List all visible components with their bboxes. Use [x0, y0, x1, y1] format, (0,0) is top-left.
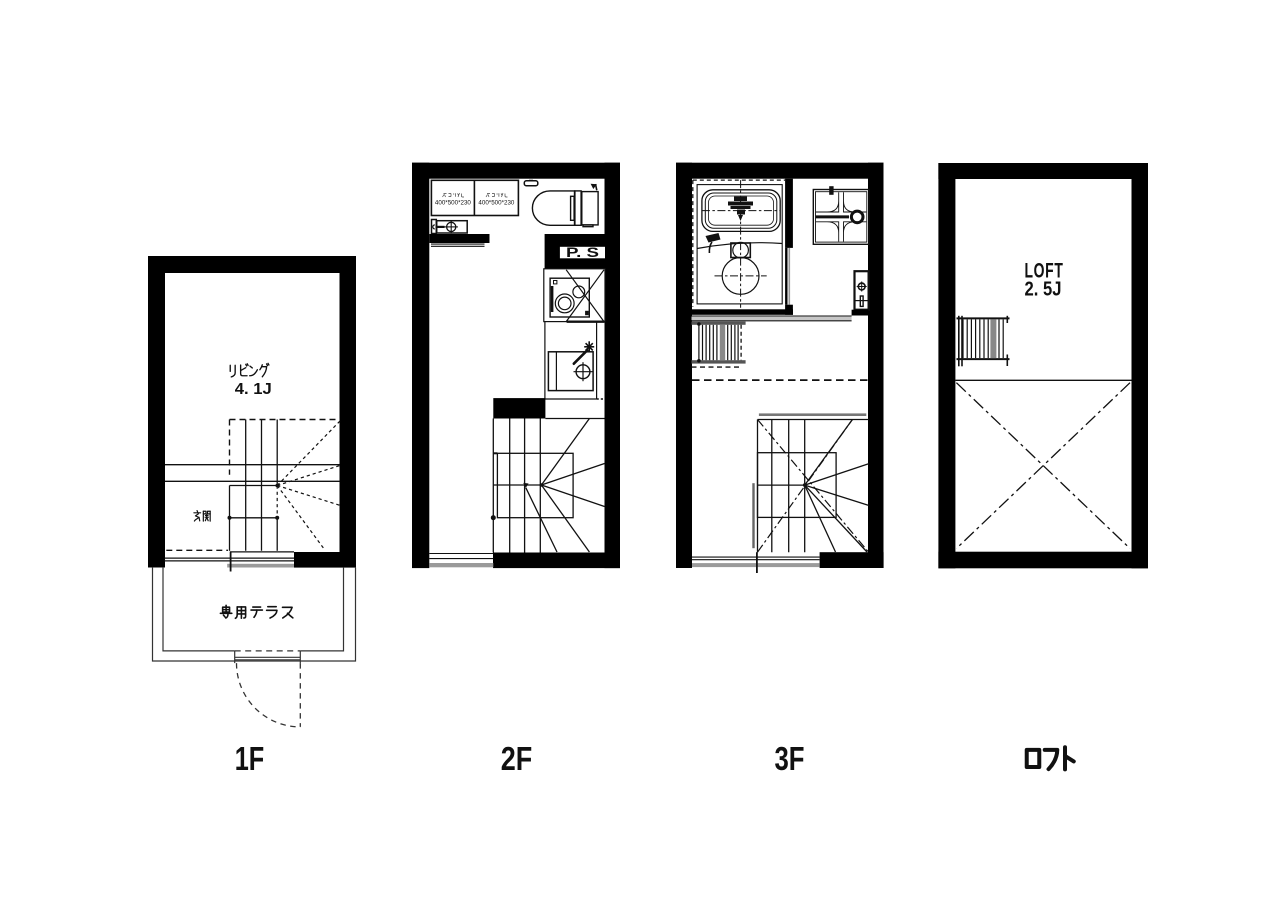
svg-text:4. 1J: 4. 1J — [235, 381, 272, 398]
svg-text:3F: 3F — [775, 740, 805, 777]
svg-text:400*500*230: 400*500*230 — [435, 200, 472, 206]
svg-text:1F: 1F — [235, 740, 265, 777]
svg-text:400*500*230: 400*500*230 — [478, 200, 515, 206]
svg-text:2F: 2F — [501, 740, 533, 777]
svg-text:P. S: P. S — [566, 245, 599, 260]
svg-text:2. 5J: 2. 5J — [1025, 279, 1062, 301]
